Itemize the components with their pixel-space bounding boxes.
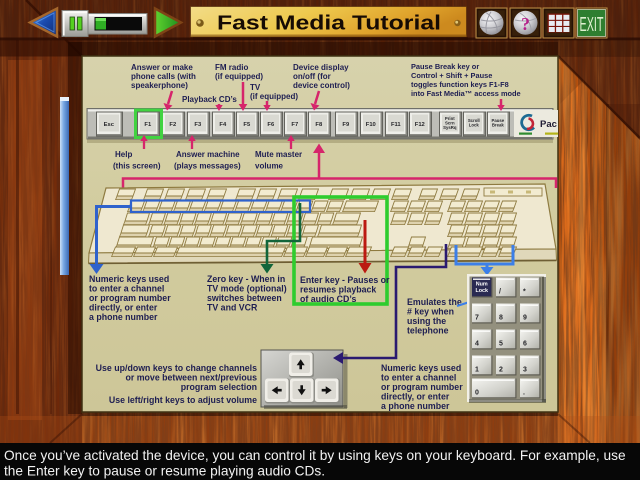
svg-text:Numeric keys used: Numeric keys used [381, 363, 461, 373]
svg-text:or program number: or program number [89, 293, 171, 303]
svg-text:or program number: or program number [381, 382, 463, 392]
svg-text:Mute master: Mute master [255, 150, 302, 159]
svg-text:F1: F1 [144, 122, 152, 128]
svg-text:F3: F3 [194, 122, 202, 128]
svg-text:F11: F11 [391, 122, 401, 128]
svg-text:*: * [523, 289, 526, 296]
svg-text:on/off (for: on/off (for [293, 72, 331, 81]
svg-text:Answer machine: Answer machine [176, 150, 240, 159]
svg-text:F7: F7 [291, 122, 298, 128]
svg-text:Help: Help [115, 150, 132, 159]
svg-text:a phone number: a phone number [89, 312, 158, 322]
svg-text:Lock: Lock [469, 123, 480, 128]
svg-text:to enter a channel: to enter a channel [381, 373, 456, 383]
svg-text:2: 2 [499, 367, 503, 374]
svg-text:4: 4 [475, 341, 479, 348]
svg-text:(this screen): (this screen) [113, 162, 161, 171]
svg-text:Numeric keys used: Numeric keys used [89, 274, 169, 284]
svg-text:(plays messages): (plays messages) [174, 162, 241, 171]
svg-text:SysRq: SysRq [443, 125, 457, 130]
svg-text:Break: Break [492, 123, 505, 128]
svg-text:/: / [499, 289, 501, 296]
svg-text:F12: F12 [415, 122, 425, 128]
svg-text:EXIT: EXIT [580, 14, 604, 36]
svg-text:Use up/down keys to change cha: Use up/down keys to change channels [96, 363, 257, 373]
svg-text:Lock: Lock [475, 288, 488, 294]
svg-text:Emulates the: Emulates the [407, 297, 462, 307]
svg-text:1: 1 [475, 367, 479, 374]
svg-text:Esc: Esc [104, 122, 115, 128]
svg-text:telephone: telephone [407, 326, 449, 336]
svg-text:speakerphone): speakerphone) [131, 81, 188, 90]
svg-text:F4: F4 [219, 122, 227, 128]
svg-text:Playback CD’s: Playback CD’s [182, 95, 237, 104]
svg-text:volume: volume [255, 162, 284, 171]
svg-text:(if equipped): (if equipped) [250, 92, 298, 101]
svg-text:Pac: Pac [540, 119, 557, 130]
svg-text:directly, or enter: directly, or enter [89, 303, 158, 313]
svg-text:toggles function keys F1-F8: toggles function keys F1-F8 [411, 80, 509, 89]
svg-text:Zero key - When in: Zero key - When in [207, 274, 285, 284]
svg-text:# key when: # key when [407, 307, 454, 317]
svg-text:directly, or enter: directly, or enter [381, 392, 450, 402]
svg-text:0: 0 [475, 390, 479, 397]
svg-text:resumes playback: resumes playback [300, 285, 376, 295]
svg-text:F2: F2 [169, 122, 176, 128]
svg-text:or move between next/previous: or move between next/previous [125, 373, 257, 383]
svg-text:device control): device control) [293, 81, 350, 90]
svg-text:the Enter key to pause or resu: the Enter key to pause or resume playing… [4, 464, 325, 479]
svg-text:6: 6 [523, 341, 527, 348]
svg-text:7: 7 [475, 315, 479, 322]
svg-text:Num: Num [476, 282, 488, 288]
svg-text:of audio CD’s: of audio CD’s [300, 294, 356, 304]
svg-text:TV mode (optional): TV mode (optional) [207, 284, 287, 294]
svg-text:using the: using the [407, 316, 446, 326]
svg-text:into Fast Media™ access mode: into Fast Media™ access mode [411, 89, 521, 98]
svg-text:Fast Media Tutorial: Fast Media Tutorial [217, 12, 441, 35]
svg-text:8: 8 [499, 315, 503, 322]
svg-text:Pause Break key or: Pause Break key or [411, 62, 479, 71]
svg-text:F6: F6 [267, 122, 275, 128]
svg-text:F5: F5 [243, 122, 251, 128]
svg-text:3: 3 [523, 367, 527, 374]
svg-text:F8: F8 [315, 122, 323, 128]
svg-text:F10: F10 [366, 122, 376, 128]
svg-text:Answer or make: Answer or make [131, 63, 193, 72]
svg-text:TV and VCR: TV and VCR [207, 303, 258, 313]
svg-text:.: . [523, 390, 525, 397]
svg-text:Enter key - Pauses or: Enter key - Pauses or [300, 275, 390, 285]
svg-text:F9: F9 [342, 122, 350, 128]
svg-text:to enter a channel: to enter a channel [89, 284, 164, 294]
svg-text:9: 9 [523, 315, 527, 322]
svg-text:phone calls (with: phone calls (with [131, 72, 196, 81]
svg-text:program selection: program selection [181, 382, 257, 392]
svg-text:Device display: Device display [293, 63, 349, 72]
svg-text:FM radio: FM radio [215, 63, 248, 72]
svg-text:Once you’ve activated the devi: Once you’ve activated the device, you ca… [4, 448, 626, 463]
svg-text:?: ? [521, 14, 530, 34]
svg-text:switches between: switches between [207, 293, 282, 303]
svg-text:a phone number: a phone number [381, 401, 450, 411]
svg-text:5: 5 [499, 341, 503, 348]
svg-text:TV: TV [250, 83, 261, 92]
svg-text:(if equipped): (if equipped) [215, 72, 263, 81]
svg-text:Use left/right keys to adjust: Use left/right keys to adjust volume [109, 395, 257, 405]
svg-text:Control + Shift + Pause: Control + Shift + Pause [411, 71, 492, 80]
